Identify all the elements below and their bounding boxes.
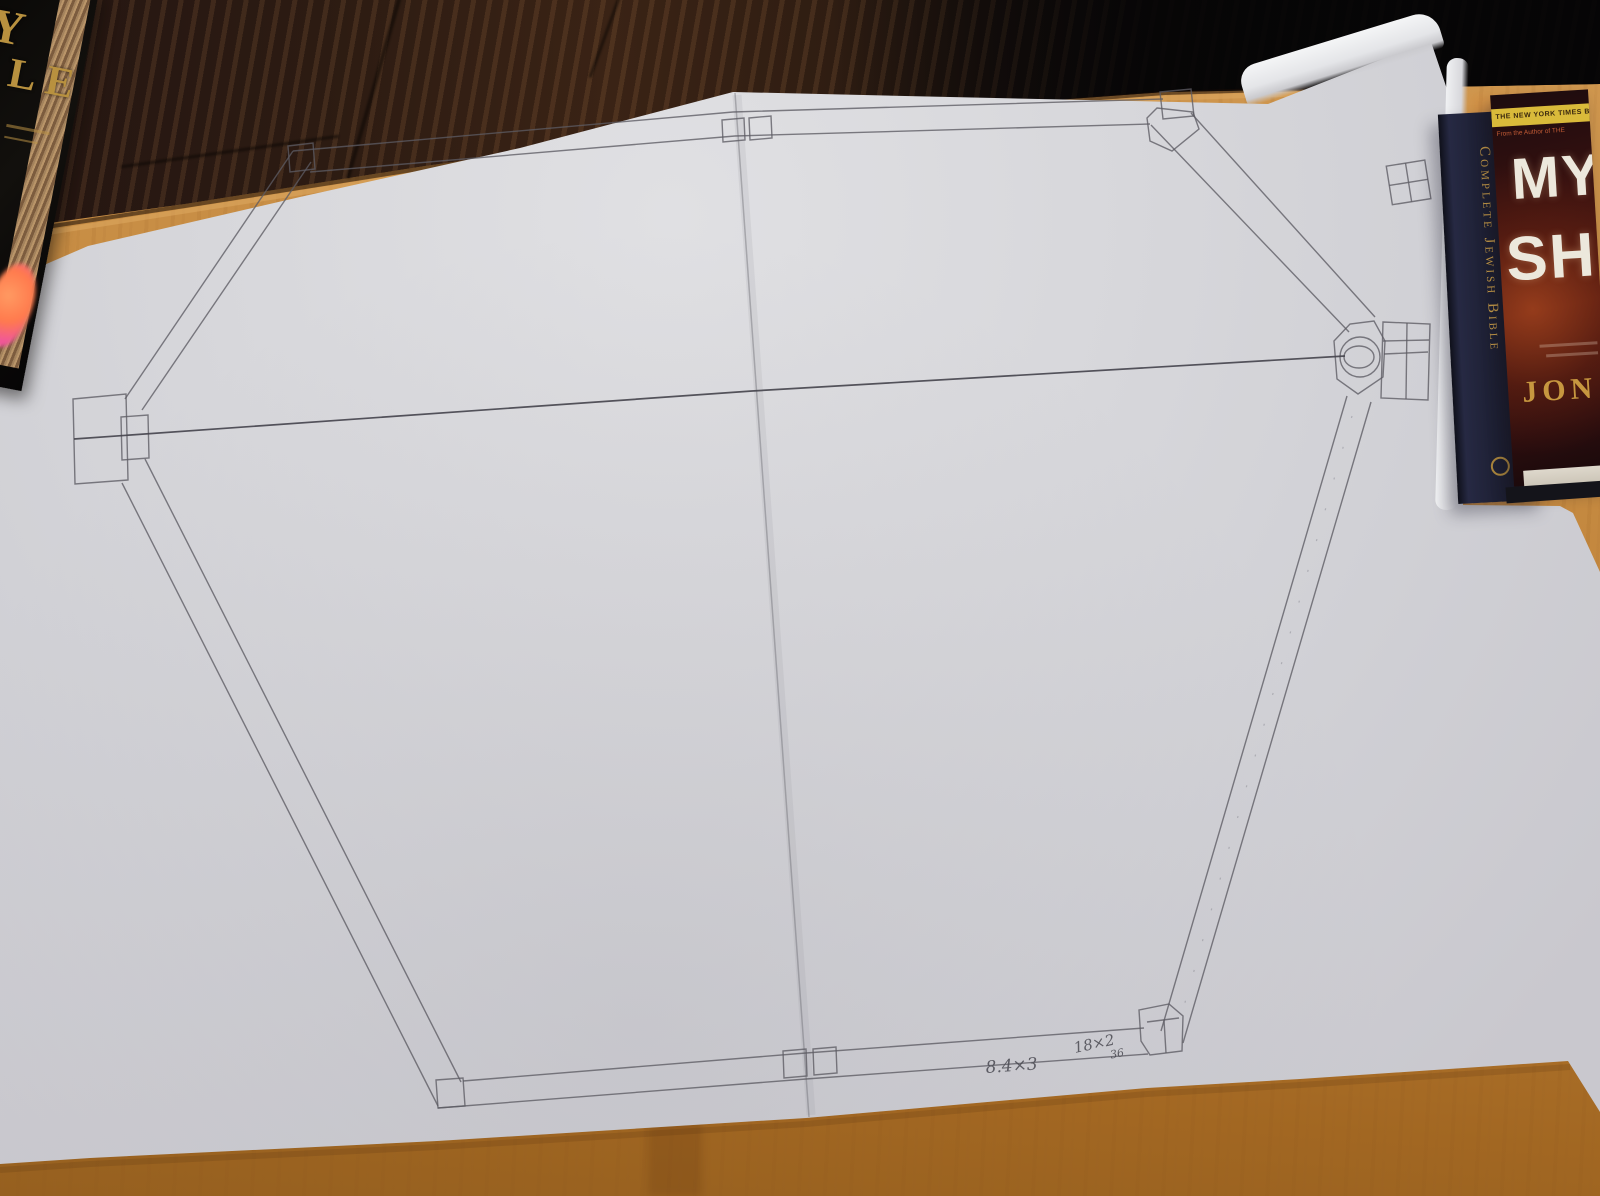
cover-small-text-bar — [1539, 341, 1597, 348]
cover-author-name: JON — [1521, 371, 1598, 410]
bestseller-banner: THE NEW YORK TIMES BEST — [1491, 103, 1594, 127]
publisher-logo-icon — [1490, 456, 1510, 476]
cover-title-line-1: MY — [1509, 141, 1600, 213]
author-tagline: From the Author of THE — [1496, 125, 1590, 138]
cover-small-text-bar — [1546, 351, 1598, 357]
photo-scene: 8.4×3 18×2 36 Y LE Complete Jewish Bible… — [0, 0, 1600, 1196]
cover-title-line-2: SH — [1504, 219, 1598, 295]
